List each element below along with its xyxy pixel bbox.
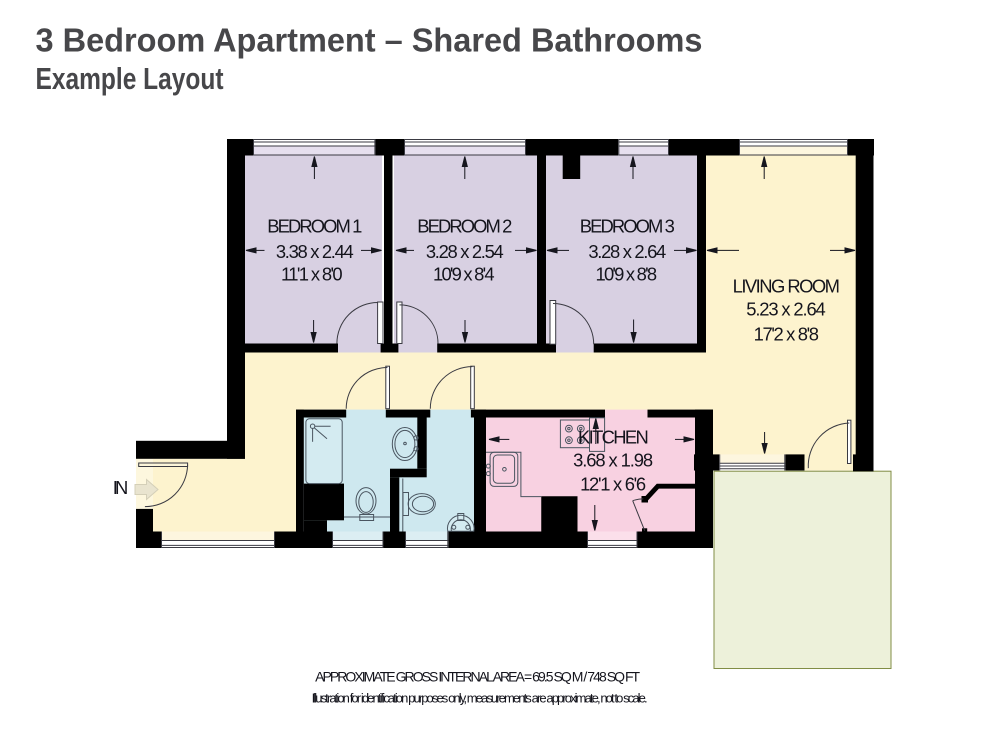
svg-text:3.28 x 2.54: 3.28 x 2.54 (426, 241, 504, 262)
svg-text:BEDROOM 1: BEDROOM 1 (267, 216, 362, 237)
svg-text:11'1 x 8'0: 11'1 x 8'0 (281, 264, 343, 285)
svg-text:12'1 x 6'6: 12'1 x 6'6 (580, 474, 646, 495)
svg-text:KITCHEN: KITCHEN (578, 427, 649, 448)
svg-text:3.28 x 2.64: 3.28 x 2.64 (588, 241, 666, 262)
svg-text:BEDROOM 2: BEDROOM 2 (417, 216, 512, 237)
svg-text:Illustration for identificatio: Illustration for identification purposes… (312, 691, 648, 706)
svg-text:LIVING ROOM: LIVING ROOM (733, 275, 840, 296)
svg-text:IN: IN (113, 477, 129, 498)
svg-text:5.23 x 2.64: 5.23 x 2.64 (746, 299, 826, 320)
svg-text:10'9 x 8'4: 10'9 x 8'4 (433, 264, 495, 285)
svg-text:3 Bedroom Apartment – Shared B: 3 Bedroom Apartment – Shared Bathrooms (36, 22, 703, 59)
svg-text:BEDROOM 3: BEDROOM 3 (580, 216, 675, 237)
svg-text:17'2 x 8'8: 17'2 x 8'8 (754, 323, 819, 344)
svg-text:3.38 x 2.44: 3.38 x 2.44 (276, 241, 354, 262)
svg-text:APPROXIMATE GROSS INTERNAL ARE: APPROXIMATE GROSS INTERNAL AREA = 69.5 S… (315, 669, 640, 685)
svg-text:3.68 x 1.98: 3.68 x 1.98 (573, 450, 653, 471)
svg-text:Example Layout: Example Layout (36, 62, 224, 96)
svg-text:10'9 x 8'8: 10'9 x 8'8 (596, 264, 658, 285)
